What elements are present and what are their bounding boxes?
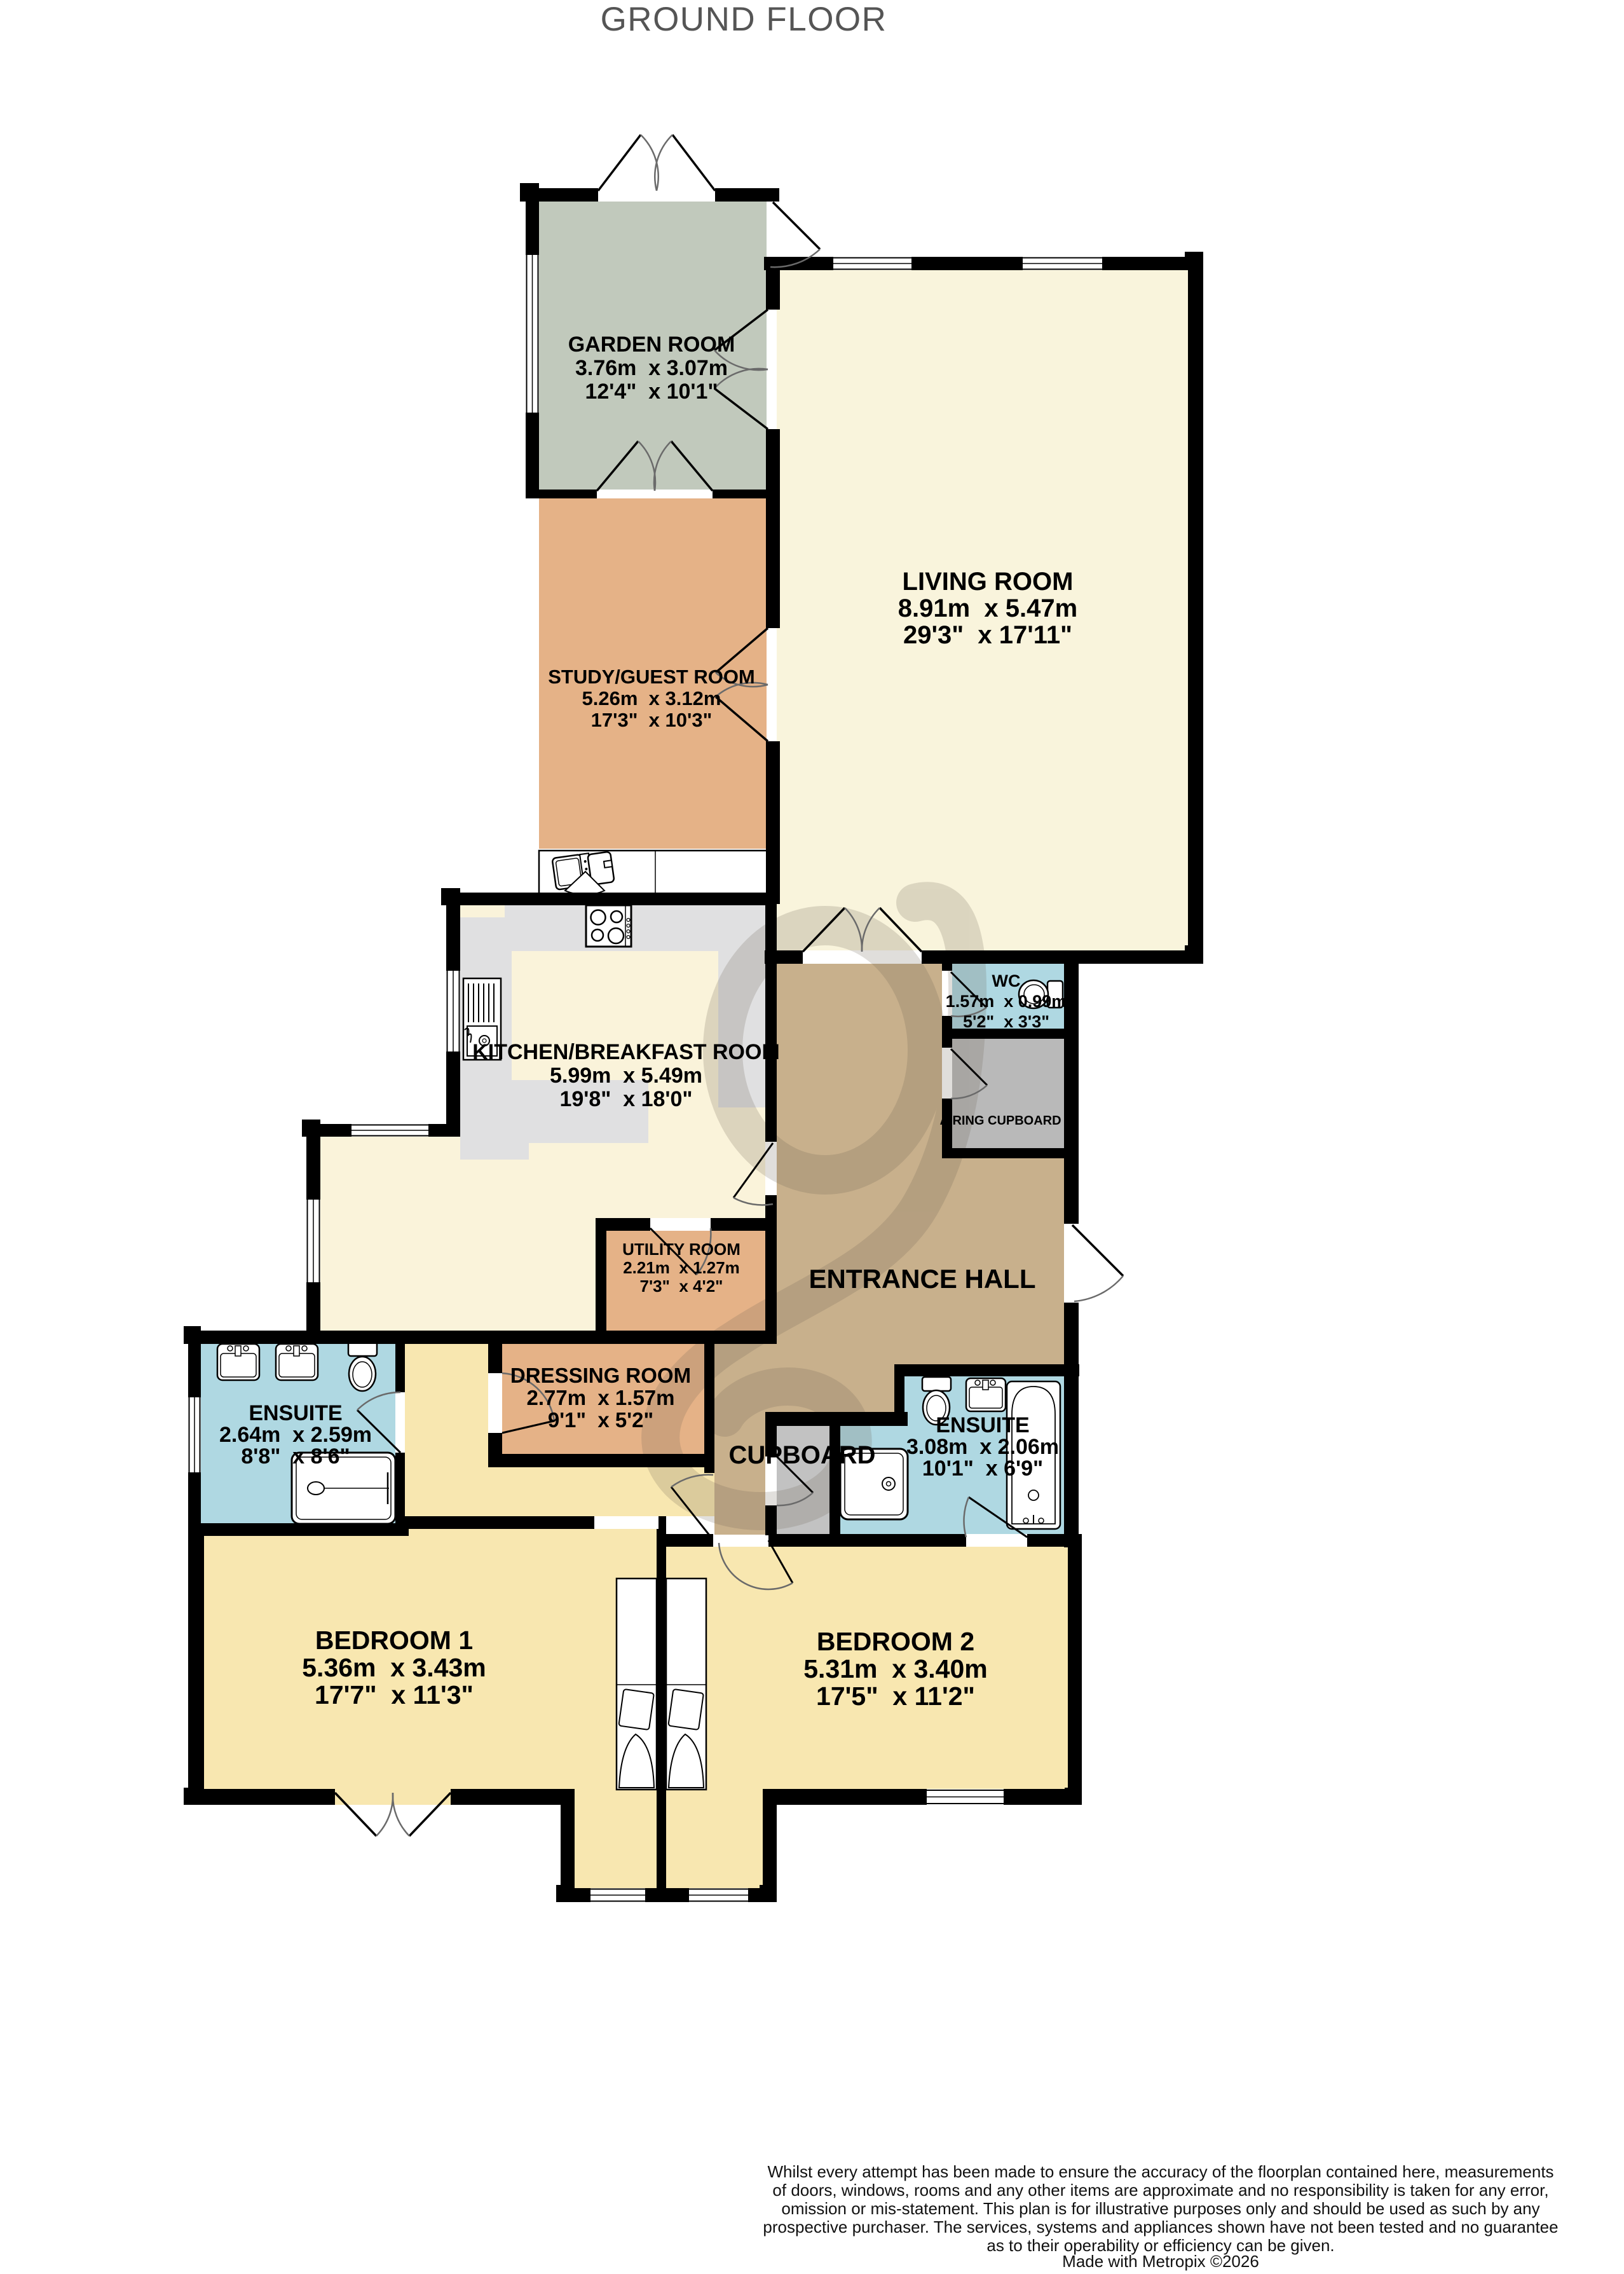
svg-text:1.57m x 0.99m: 1.57m x 0.99m — [946, 992, 1067, 1011]
svg-text:2.21m x 1.27m: 2.21m x 1.27m — [623, 1258, 740, 1277]
svg-text:2.64m x 2.59m: 2.64m x 2.59m — [219, 1423, 372, 1447]
svg-text:19'8" x 18'0": 19'8" x 18'0" — [559, 1087, 692, 1111]
svg-text:LIVING ROOM: LIVING ROOM — [903, 568, 1074, 596]
svg-text:DRESSING ROOM: DRESSING ROOM — [510, 1364, 691, 1387]
svg-text:ENSUITE: ENSUITE — [249, 1401, 342, 1425]
svg-text:5.36m x 3.43m: 5.36m x 3.43m — [302, 1653, 486, 1682]
svg-text:5.31m x 3.40m: 5.31m x 3.40m — [803, 1654, 987, 1683]
svg-text:8'8" x 8'6": 8'8" x 8'6" — [241, 1444, 350, 1469]
svg-text:WC: WC — [992, 971, 1021, 990]
svg-text:ENSUITE: ENSUITE — [936, 1413, 1029, 1437]
svg-text:17'3" x 10'3": 17'3" x 10'3" — [591, 709, 713, 731]
svg-text:STUDY/GUEST ROOM: STUDY/GUEST ROOM — [548, 666, 755, 688]
svg-text:AIRING CUPBOARD: AIRING CUPBOARD — [939, 1114, 1061, 1128]
svg-text:GROUND FLOOR: GROUND FLOOR — [601, 1, 887, 38]
svg-text:5.26m x 3.12m: 5.26m x 3.12m — [582, 687, 721, 709]
svg-text:3.08m x 2.06m: 3.08m x 2.06m — [906, 1435, 1059, 1459]
svg-text:5.99m x 5.49m: 5.99m x 5.49m — [550, 1064, 702, 1088]
svg-text:12'4" x 10'1": 12'4" x 10'1" — [585, 380, 718, 404]
svg-text:GARDEN ROOM: GARDEN ROOM — [568, 332, 735, 357]
svg-text:5'2" x 3'3": 5'2" x 3'3" — [963, 1012, 1049, 1031]
svg-text:Made with Metropix ©2026: Made with Metropix ©2026 — [1062, 2252, 1259, 2271]
svg-text:17'7" x 11'3": 17'7" x 11'3" — [315, 1680, 474, 1709]
svg-text:BEDROOM 2: BEDROOM 2 — [817, 1627, 974, 1656]
svg-text:ENTRANCE HALL: ENTRANCE HALL — [809, 1264, 1036, 1294]
svg-text:of doors, windows, rooms and a: of doors, windows, rooms and any other i… — [772, 2181, 1548, 2200]
svg-text:prospective purchaser. The ser: prospective purchaser. The services, sys… — [763, 2217, 1558, 2236]
svg-text:17'5" x 11'2": 17'5" x 11'2" — [816, 1682, 975, 1711]
svg-text:KITCHEN/BREAKFAST ROOM: KITCHEN/BREAKFAST ROOM — [472, 1040, 780, 1064]
svg-text:8.91m x 5.47m: 8.91m x 5.47m — [898, 594, 1077, 622]
svg-text:CUPBOARD: CUPBOARD — [728, 1441, 875, 1469]
svg-text:29'3" x 17'11": 29'3" x 17'11" — [903, 621, 1072, 649]
svg-text:Whilst every attempt has been: Whilst every attempt has been made to en… — [767, 2162, 1553, 2181]
svg-text:UTILITY ROOM: UTILITY ROOM — [622, 1240, 740, 1259]
svg-text:7'3" x 4'2": 7'3" x 4'2" — [640, 1277, 723, 1296]
svg-text:9'1" x 5'2": 9'1" x 5'2" — [548, 1408, 653, 1432]
svg-text:10'1" x 6'9": 10'1" x 6'9" — [922, 1456, 1043, 1481]
svg-text:2.77m x 1.57m: 2.77m x 1.57m — [527, 1386, 675, 1409]
svg-text:omission or mis-statement. Thi: omission or mis-statement. This plan is … — [781, 2199, 1539, 2218]
svg-text:BEDROOM 1: BEDROOM 1 — [315, 1626, 473, 1655]
svg-text:3.76m x 3.07m: 3.76m x 3.07m — [575, 356, 728, 380]
